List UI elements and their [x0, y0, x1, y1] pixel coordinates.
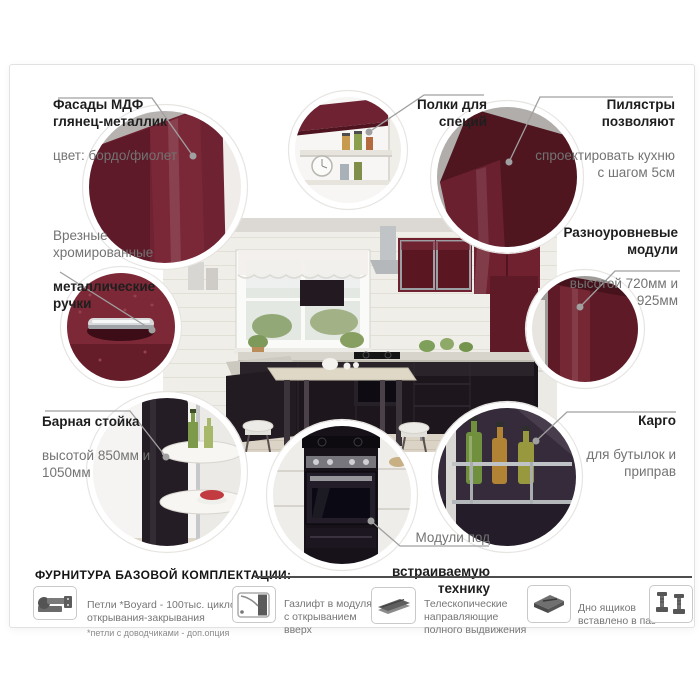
callout-desc: цвет: бордо/фиолет: [53, 147, 177, 164]
callout-label-spice-shelves: Полки для специй: [417, 79, 487, 147]
infographic-page: Фасады МДФ глянец-металлик цвет: бордо/ф…: [0, 0, 700, 700]
callout-label-handles: Врезные хромированные металлические ручк…: [53, 210, 155, 329]
hardware-item-telescopic-text: Телескопические направляющие полного выд…: [424, 585, 526, 637]
adjustable-feet-icon: [654, 591, 688, 617]
hardware-item-telescopic: [371, 587, 416, 624]
hardware-item-hinge: [33, 586, 77, 620]
hardware-text: Дно ящиков вставлено в паз: [578, 602, 656, 627]
hardware-item-drawer-bottom-text: Дно ящиков вставлено в паз: [578, 589, 656, 628]
gas-lift-icon: [237, 592, 271, 618]
callout-label-cargo: Карго для бутылок и приправ: [586, 395, 676, 497]
telescopic-slides-icon: [376, 594, 412, 618]
hardware-item-gas-lift: [232, 586, 276, 623]
callout-desc: высотой 720мм и 925мм: [563, 275, 678, 309]
hardware-text: Петли *Boyard - 100тыс. циклов открывани…: [87, 599, 241, 624]
hardware-section-title: ФУРНИТУРА БАЗОВОЙ КОМПЛЕКТАЦИИ:: [35, 568, 291, 582]
callout-title: Разноуровневые модули: [563, 224, 678, 258]
callout-title: Пилястры позволяют: [535, 96, 675, 130]
callout-title: Полки для специй: [417, 96, 487, 130]
callout-label-bar-counter: Барная стойка высотой 850мм и 1050мм: [42, 396, 150, 498]
callout-title: Барная стойка: [42, 413, 150, 430]
callout-desc: для бутылок и приправ: [586, 446, 676, 480]
callout-title: Карго: [586, 412, 676, 429]
hardware-item-adjustable-feet: [649, 585, 693, 623]
drawer-bottom-icon: [531, 592, 567, 616]
hardware-text: Телескопические направляющие полного выд…: [424, 598, 526, 636]
hardware-note: *петли с доводчиками - доп.опция: [87, 627, 241, 640]
hardware-divider: [255, 576, 692, 578]
callout-desc: Модули под: [392, 529, 490, 546]
callout-label-pilasters: Пилястры позволяют спроектировать кухню …: [535, 79, 675, 198]
callout-desc: высотой 850мм и 1050мм: [42, 447, 150, 481]
hardware-item-drawer-bottom: [527, 585, 571, 623]
callout-desc: спроектировать кухню с шагом 5см: [535, 147, 675, 181]
callout-desc: Врезные хромированные: [53, 227, 155, 261]
callout-title: металлические ручки: [53, 278, 155, 312]
hinge-icon: [37, 591, 73, 615]
callout-title: Фасады МДФ глянец-металлик: [53, 96, 177, 130]
hardware-item-hinge-text: Петли *Boyard - 100тыс. циклов открывани…: [87, 586, 241, 653]
hardware-item-gas-lift-text: Газлифт в модулях с открыванием вверх: [284, 585, 377, 637]
callout-label-facades: Фасады МДФ глянец-металлик цвет: бордо/ф…: [53, 79, 177, 181]
callout-label-modules: Разноуровневые модули высотой 720мм и 92…: [563, 207, 678, 326]
hardware-text: Газлифт в модулях с открыванием вверх: [284, 598, 377, 636]
